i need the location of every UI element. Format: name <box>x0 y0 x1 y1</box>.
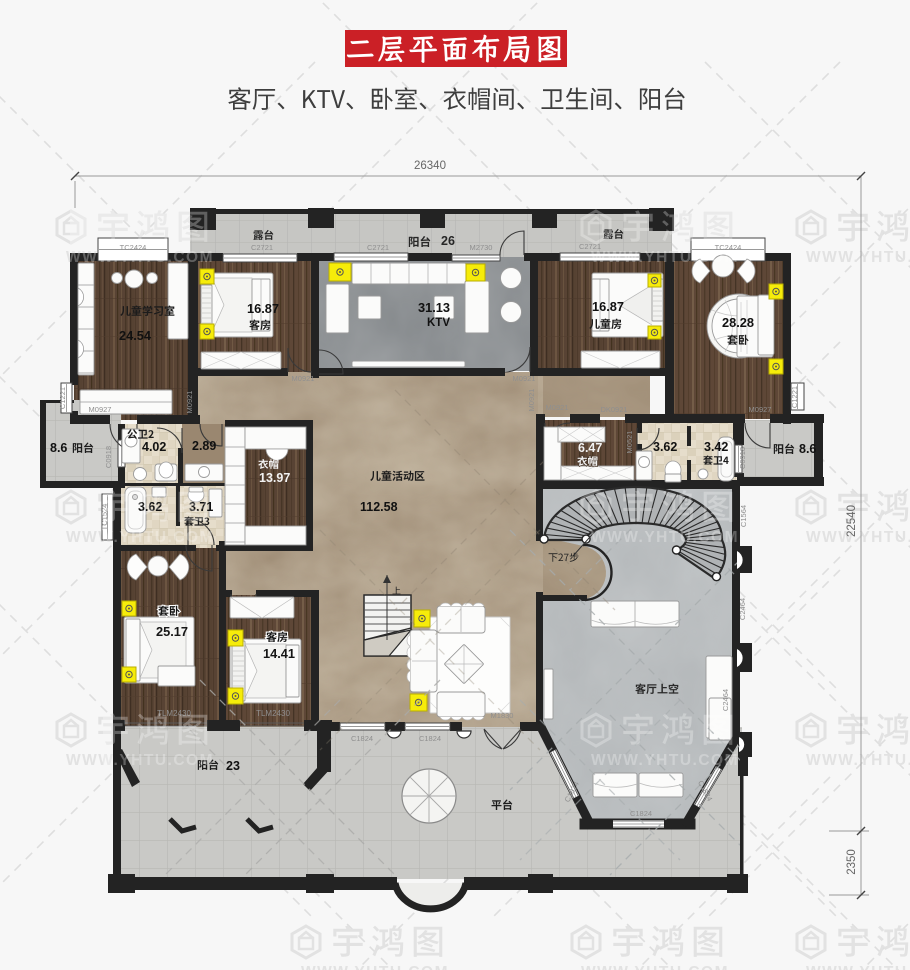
svg-text:WWW.YHTU.COM: WWW.YHTU.COM <box>581 964 729 970</box>
svg-text:8.6: 8.6 <box>50 441 67 455</box>
svg-text:WWW.YHTU.COM: WWW.YHTU.COM <box>591 249 739 266</box>
svg-text:16.87: 16.87 <box>247 301 279 316</box>
svg-text:26: 26 <box>441 234 455 248</box>
svg-text:26340: 26340 <box>414 160 446 172</box>
svg-text:M0921: M0921 <box>513 374 536 383</box>
svg-text:M0921: M0921 <box>185 391 194 414</box>
svg-text:31.13: 31.13 <box>418 300 450 315</box>
svg-text:WWW.YHTU.COM: WWW.YHTU.COM <box>66 249 214 266</box>
svg-text:WWW.YHTU.COM: WWW.YHTU.COM <box>301 964 449 970</box>
svg-text:M0927: M0927 <box>89 405 112 414</box>
svg-text:M0921: M0921 <box>292 374 315 383</box>
svg-text:C1564: C1564 <box>739 505 748 527</box>
svg-text:DK0921: DK0921 <box>600 405 627 414</box>
svg-text:2350: 2350 <box>846 849 858 875</box>
svg-text:C1824: C1824 <box>630 809 652 818</box>
svg-text:28.28: 28.28 <box>722 315 754 330</box>
svg-text:8.6: 8.6 <box>799 442 816 456</box>
svg-text:112.58: 112.58 <box>360 500 398 514</box>
svg-text:6.47: 6.47 <box>578 441 602 455</box>
svg-text:25.17: 25.17 <box>156 624 188 639</box>
svg-text:WWW.YHTU.COM: WWW.YHTU.COM <box>806 964 910 970</box>
svg-text:WWW.YHTU.COM: WWW.YHTU.COM <box>591 752 739 769</box>
svg-text:TC1524: TC1524 <box>100 504 109 531</box>
svg-text:C0918: C0918 <box>104 446 113 468</box>
svg-text:3.62: 3.62 <box>653 440 677 454</box>
svg-text:M0927: M0927 <box>749 405 772 414</box>
svg-text:23: 23 <box>226 759 240 773</box>
svg-text:M0921: M0921 <box>546 403 569 412</box>
svg-text:C1824: C1824 <box>419 734 441 743</box>
svg-text:WWW.YHTU.COM: WWW.YHTU.COM <box>806 752 910 769</box>
svg-text:24.54: 24.54 <box>119 328 152 343</box>
svg-text:C2721: C2721 <box>251 243 273 252</box>
svg-text:M0521: M0521 <box>625 431 634 454</box>
svg-text:M0921: M0921 <box>527 389 536 412</box>
svg-text:C2464: C2464 <box>738 598 747 620</box>
svg-text:C1824: C1824 <box>351 734 373 743</box>
svg-text:KTV: KTV <box>427 317 450 329</box>
svg-text:C1221: C1221 <box>58 387 67 409</box>
svg-text:M2730: M2730 <box>470 243 493 252</box>
svg-text:16.87: 16.87 <box>592 299 624 314</box>
svg-text:14.41: 14.41 <box>263 646 295 661</box>
svg-text:22540: 22540 <box>846 505 858 537</box>
svg-text:WWW.YHTU.COM: WWW.YHTU.COM <box>591 529 739 546</box>
svg-text:C1221: C1221 <box>790 386 799 408</box>
svg-text:WWW.YHTU.COM: WWW.YHTU.COM <box>806 249 910 266</box>
svg-text:2.89: 2.89 <box>192 439 216 453</box>
svg-text:TLM2430: TLM2430 <box>256 709 290 718</box>
svg-text:3.42: 3.42 <box>704 440 728 454</box>
svg-text:C2721: C2721 <box>367 243 389 252</box>
svg-text:C2464: C2464 <box>721 689 730 711</box>
svg-text:C0918: C0918 <box>738 447 747 469</box>
svg-text:4.02: 4.02 <box>142 440 166 454</box>
svg-text:M1830: M1830 <box>491 711 514 720</box>
svg-text:13.97: 13.97 <box>259 471 290 485</box>
